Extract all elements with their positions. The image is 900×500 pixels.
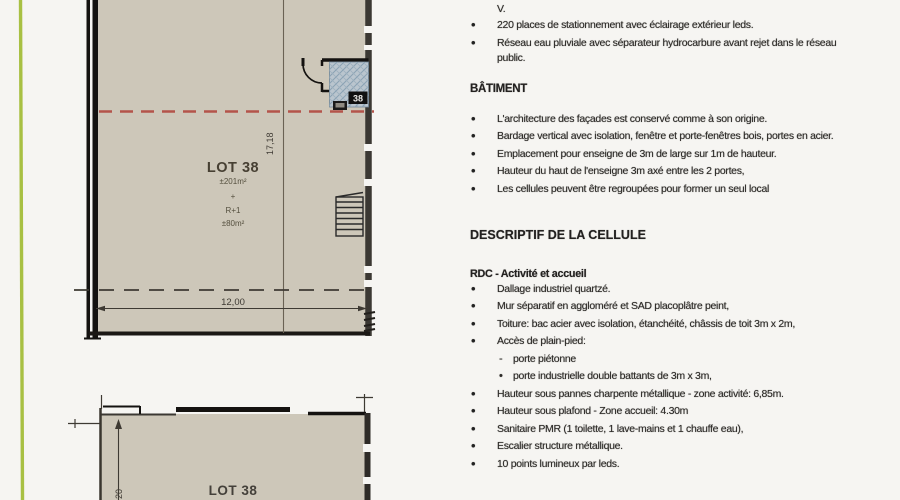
list-item: Hauteur du haut de l'enseigne 3m axé ent… <box>468 164 842 179</box>
sub-list-item: - porte piétonne <box>468 352 842 367</box>
list-item: Réseau eau pluviale avec séparateur hydr… <box>468 36 842 66</box>
list-item: Hauteur sous plafond - Zone accueil: 4.3… <box>468 404 842 419</box>
lot-level: R+1 <box>226 206 241 215</box>
batiment-bullet-list: L'architecture des façades est conservé … <box>468 112 842 197</box>
rdc-heading: RDC - Activité et accueil <box>470 267 842 282</box>
floor-plan-bottom: 20 LOT 38 <box>68 394 373 500</box>
list-item: Accès de plain-pied: <box>468 334 842 349</box>
dim-width-label: 12,00 <box>221 297 245 308</box>
lot-area-main: ±201m² <box>219 177 246 186</box>
sub-item-marker: - <box>499 352 502 367</box>
dim-height-label: 17,18 <box>265 132 275 155</box>
lot-title-top: LOT 38 <box>207 160 259 176</box>
list-item: 10 points lumineux par leds. <box>468 457 842 472</box>
dim-partial-label: 20 <box>114 489 124 499</box>
scanned-document-page: 38 17,18 LOT 38 ±201m² + R+1 ±80m² <box>0 0 900 500</box>
site-bullet-list: 220 places de stationnement avec éclaira… <box>468 18 842 66</box>
list-item: Escalier structure métallique. <box>468 439 842 454</box>
floor-plan-top: 38 17,18 LOT 38 ±201m² + R+1 ±80m² <box>74 0 375 339</box>
descriptif-heading: DESCRIPTIF DE LA CELLULE <box>470 228 842 243</box>
lot-area-upper: ±80m² <box>222 219 245 228</box>
sub-item-text: porte piétonne <box>513 353 576 365</box>
sub-item-text: porte industrielle double battants de 3m… <box>513 370 712 382</box>
batiment-heading: BÂTIMENT <box>470 82 842 97</box>
list-item: Les cellules peuvent être regroupées pou… <box>468 182 842 197</box>
sub-item-marker: • <box>499 369 503 384</box>
lot-plus: + <box>231 192 236 201</box>
continuation-line: V. <box>468 2 842 17</box>
cell-number-label: 38 <box>353 94 363 104</box>
list-item: Sanitaire PMR (1 toilette, 1 lave-mains … <box>468 422 842 437</box>
list-item: Hauteur sous pannes charpente métallique… <box>468 387 842 402</box>
list-item: L'architecture des façades est conservé … <box>468 112 842 127</box>
lot-title-bottom: LOT 38 <box>209 483 258 498</box>
list-item: Dallage industriel quartzé. <box>468 282 842 297</box>
list-item: Emplacement pour enseigne de 3m de large… <box>468 147 842 162</box>
list-item: Mur séparatif en aggloméré et SAD placop… <box>468 299 842 314</box>
sub-list-item: • porte industrielle double battants de … <box>468 369 842 384</box>
list-item: 220 places de stationnement avec éclaira… <box>468 18 842 33</box>
list-item: Bardage vertical avec isolation, fenêtre… <box>468 129 842 144</box>
list-item: Toiture: bac acier avec isolation, étanc… <box>468 317 842 332</box>
description-column: V. 220 places de stationnement avec écla… <box>468 0 842 474</box>
rdc-bullet-list: Dallage industriel quartzé. Mur séparati… <box>468 282 842 472</box>
green-margin-rule <box>21 0 23 500</box>
